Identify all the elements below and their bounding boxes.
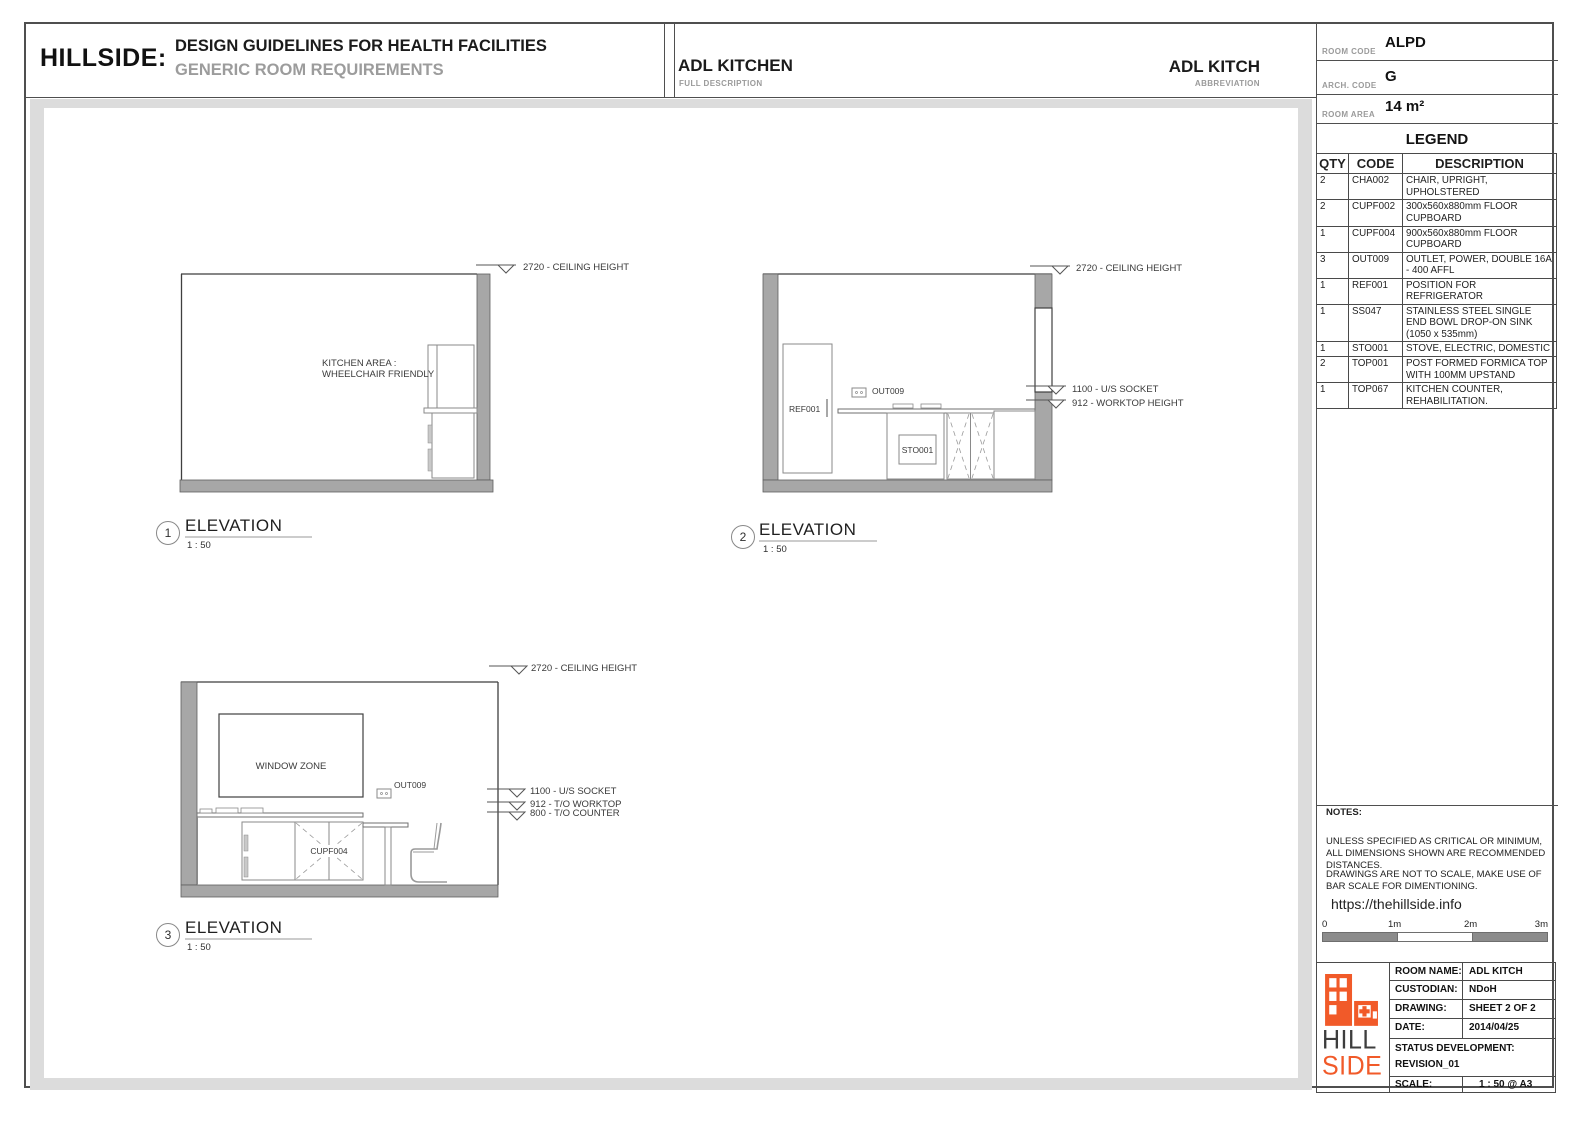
architectural-drawing-sheet: { "header": { "brand": "HILLSIDE:", "tit… — [0, 0, 1587, 1123]
ceiling-height-annotation: 2720 - CEILING HEIGHT — [1076, 263, 1182, 274]
floor — [763, 480, 1052, 492]
level-marker — [487, 802, 525, 810]
ceiling-height-annotation: 2720 - CEILING HEIGHT — [531, 663, 637, 674]
power-outlet-icon — [377, 789, 391, 798]
left-wall — [763, 274, 778, 480]
left-wall — [181, 682, 197, 885]
window-zone-label: WINDOW ZONE — [256, 761, 327, 772]
elevation-3: WINDOW ZONE OUT009 CUPF004 — [157, 663, 638, 953]
socket-height-annotation: 1100 - U/S SOCKET — [1072, 384, 1159, 395]
floor-cupboard: CUPF004 — [242, 822, 363, 880]
kitchen-area-note-line2: WHEELCHAIR FRIENDLY — [322, 369, 435, 380]
ceiling-height-annotation: 2720 - CEILING HEIGHT — [523, 262, 629, 273]
tall-cabinet — [424, 345, 477, 478]
socket-height-annotation: 1100 - U/S SOCKET — [530, 786, 617, 797]
elevation-title: ELEVATION — [759, 520, 856, 539]
window-opening — [1035, 308, 1052, 392]
elevation-number: 1 — [165, 526, 172, 540]
elevation-title: ELEVATION — [185, 516, 282, 535]
stove-burner — [921, 404, 941, 408]
floor — [180, 480, 493, 492]
window-zone-box — [219, 714, 363, 797]
worktop-height-annotation: 912 - WORKTOP HEIGHT — [1072, 398, 1184, 409]
elevation-scale: 1 : 50 — [187, 540, 211, 551]
kitchen-area-note-line1: KITCHEN AREA : — [322, 358, 396, 369]
power-outlet-icon — [852, 388, 866, 397]
floor-cupboard — [947, 413, 994, 479]
elevation-number: 3 — [165, 928, 172, 942]
right-wall — [477, 274, 490, 480]
counter-unit — [994, 411, 1035, 479]
level-marker — [487, 789, 525, 797]
cupf004-label: CUPF004 — [310, 846, 348, 856]
floor — [181, 885, 498, 897]
sto001-label: STO001 — [902, 445, 934, 455]
stove-burner — [893, 404, 913, 408]
elevation-2: REF001 OUT009 STO001 2 — [732, 263, 1184, 555]
elevation-number: 2 — [740, 530, 747, 544]
level-marker — [487, 812, 525, 820]
elevation-scale: 1 : 50 — [763, 544, 787, 555]
chair — [411, 823, 447, 882]
level-marker — [489, 666, 527, 674]
out009-label: OUT009 — [872, 386, 904, 396]
level-marker — [1030, 266, 1070, 274]
elevation-scale: 1 : 50 — [187, 942, 211, 953]
level-marker — [476, 265, 516, 273]
counter-height-annotation: 800 - T/O COUNTER — [530, 808, 620, 819]
ref001-label: REF001 — [789, 404, 820, 414]
table — [363, 823, 408, 885]
elevation-title: ELEVATION — [185, 918, 282, 937]
elevation-1: KITCHEN AREA : WHEELCHAIR FRIENDLY 2720 … — [157, 262, 630, 551]
out009-label: OUT009 — [394, 780, 426, 790]
elevations-drawing: KITCHEN AREA : WHEELCHAIR FRIENDLY 2720 … — [0, 0, 1587, 1123]
